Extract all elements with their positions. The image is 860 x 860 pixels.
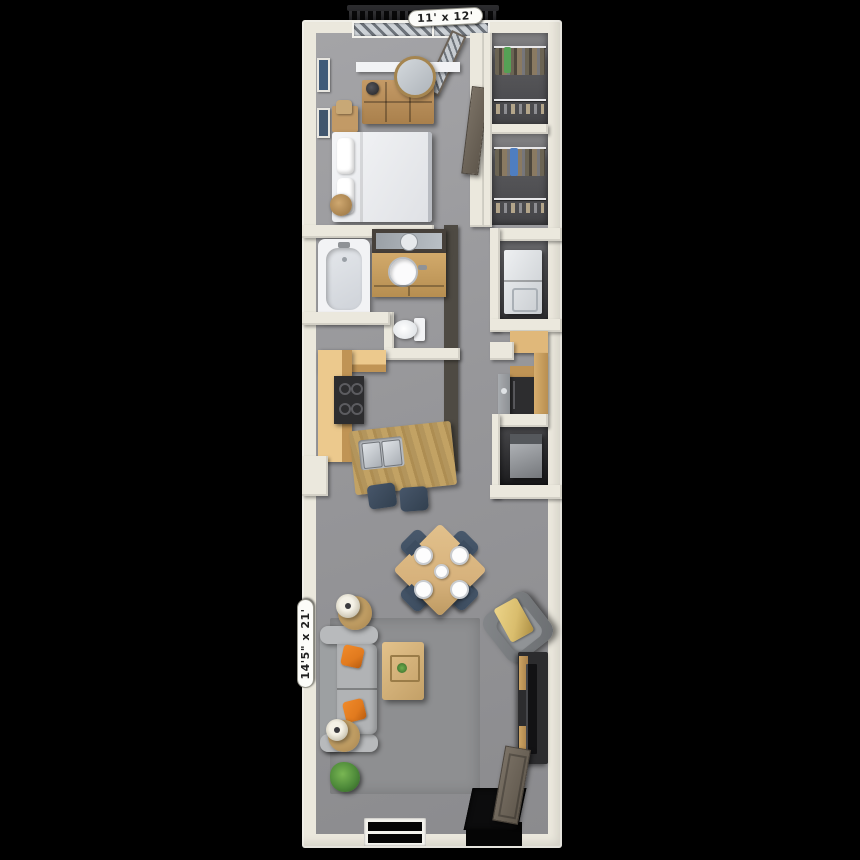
bed-pillow	[337, 138, 354, 174]
table-centerpiece	[434, 564, 449, 579]
potted-plant	[330, 762, 360, 792]
place-setting-plate	[450, 546, 469, 565]
kitchen-pass-through-wall	[490, 342, 514, 360]
washer-door-icon	[512, 288, 538, 312]
tray-plant-icon	[397, 663, 407, 673]
blue-garment	[510, 148, 518, 176]
bedroom-dimension-label: 11' x 12'	[408, 4, 471, 27]
coffee-table	[382, 642, 424, 700]
west-wall-pilaster	[302, 456, 328, 496]
closet-divider-wall	[492, 124, 548, 134]
shoe-row	[496, 104, 544, 114]
kitchen-island	[349, 421, 457, 495]
washer-seam	[504, 280, 542, 282]
fridge-handle-icon	[513, 381, 515, 409]
living-room-window	[364, 818, 426, 846]
orange-pillow	[340, 644, 365, 669]
bed-footboard	[428, 132, 432, 222]
vanity-mirror	[372, 229, 446, 253]
closet-2	[492, 134, 548, 225]
bathtub-faucet-icon	[338, 242, 350, 248]
kitchen-right-upper-counter	[510, 331, 548, 353]
island-sink-unit	[358, 436, 405, 470]
laundry-north-wall	[490, 228, 562, 241]
toilet-bowl	[393, 320, 417, 339]
sofa-cushion-seam	[337, 688, 377, 690]
closet-1	[492, 33, 548, 126]
side-faucet-icon	[501, 388, 507, 394]
green-garment	[504, 47, 511, 73]
tv-console	[518, 652, 548, 764]
table-lamp	[326, 719, 348, 741]
place-setting-plate	[450, 580, 469, 599]
utility-closet-interior	[500, 427, 548, 485]
toilet-nook-south-wall	[384, 348, 460, 360]
lamp-finial-icon	[345, 603, 351, 609]
vanity-sink	[388, 257, 418, 287]
tv-screen	[526, 664, 537, 754]
laundry-closet-interior	[500, 241, 548, 319]
bathtub	[318, 239, 370, 321]
bag-on-nightstand	[336, 100, 352, 114]
lamp-finial-icon	[334, 727, 340, 733]
dresser-seam-h	[364, 101, 432, 103]
dresser-seam-v1	[385, 82, 387, 122]
place-setting-plate	[414, 580, 433, 599]
counter-above-fridge	[510, 366, 535, 377]
utility-south-wall	[490, 485, 562, 499]
closet-shelf	[494, 198, 546, 200]
mirror-sink-reflection	[400, 233, 418, 251]
living-room-dimension-text: 14'5" x 21'	[297, 600, 314, 689]
burner-icon	[339, 403, 351, 415]
burner-icon	[339, 383, 351, 395]
bar-stool	[366, 482, 397, 510]
vanity-counter	[372, 253, 446, 297]
refrigerator	[510, 377, 535, 414]
vanity-faucet-icon	[418, 265, 427, 270]
closet-shelf	[494, 99, 546, 101]
side-sink-counter	[498, 374, 510, 414]
sink-basin	[361, 441, 383, 469]
water-heater-cap	[510, 434, 542, 444]
water-heater	[510, 434, 542, 478]
wall-art-icon	[317, 108, 330, 138]
round-mirror	[394, 56, 436, 98]
hanging-clothes	[495, 48, 545, 75]
range-stove	[334, 376, 364, 424]
burner-icon	[351, 383, 363, 395]
bathtub-drain	[342, 257, 347, 262]
vanity-drawer-seam	[408, 287, 410, 296]
tall-cabinet	[534, 353, 548, 414]
floor-plan-scene: 11' x 12' 14'5" x 21'	[0, 0, 860, 860]
table-lamp	[336, 594, 360, 618]
bed-duvet-fold	[360, 132, 363, 222]
laundry-west-wall	[490, 228, 500, 331]
burner-icon	[351, 403, 363, 415]
place-setting-plate	[414, 546, 433, 565]
stacked-washer-dryer	[504, 250, 542, 314]
closet-west-wall	[484, 33, 492, 227]
bar-stool	[399, 486, 429, 512]
living-room-dimension-label: 14'5" x 21'	[294, 598, 314, 690]
utility-north-wall	[498, 414, 548, 427]
window-pane	[368, 822, 422, 831]
basket	[330, 194, 352, 216]
dresser-lamp	[366, 82, 379, 95]
wall-art-icon	[317, 58, 330, 92]
shoe-row	[496, 203, 544, 213]
sink-basin	[381, 439, 403, 467]
hanging-clothes	[495, 149, 545, 176]
bathroom-south-wall	[302, 312, 390, 325]
window-pane	[368, 834, 422, 843]
